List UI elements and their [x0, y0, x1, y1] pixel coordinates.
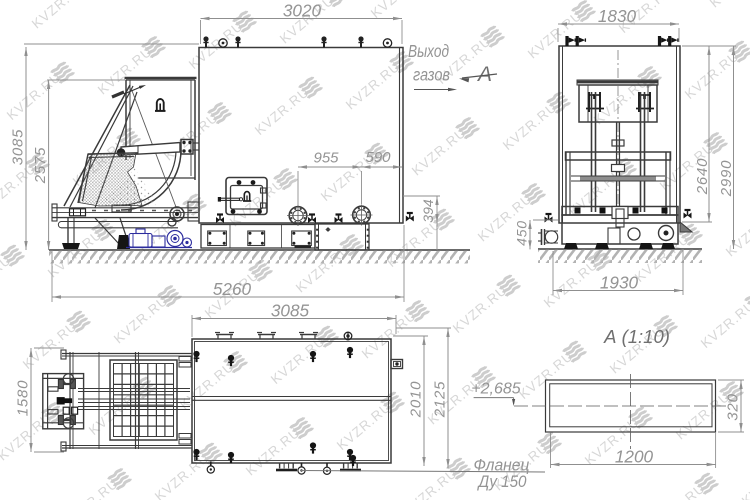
- svg-text:1830: 1830: [598, 6, 637, 26]
- svg-text:450: 450: [514, 220, 530, 246]
- svg-text:5260: 5260: [213, 279, 252, 299]
- svg-text:Выход: Выход: [408, 41, 449, 61]
- svg-text:2990: 2990: [718, 160, 735, 198]
- svg-text:3085: 3085: [271, 301, 310, 321]
- svg-text:1200: 1200: [615, 447, 654, 467]
- svg-text:320: 320: [725, 393, 742, 420]
- svg-text:Фланец: Фланец: [474, 457, 530, 475]
- svg-text:955: 955: [313, 150, 339, 167]
- svg-text:590: 590: [365, 149, 391, 166]
- svg-text:+2,685: +2,685: [471, 381, 520, 398]
- svg-text:3085: 3085: [10, 129, 27, 166]
- svg-text:1930: 1930: [600, 273, 639, 293]
- svg-text:394: 394: [420, 199, 436, 223]
- svg-text:А (1:10): А (1:10): [603, 326, 670, 347]
- svg-text:газов: газов: [413, 65, 450, 85]
- svg-text:3020: 3020: [283, 1, 322, 21]
- svg-text:2640: 2640: [694, 158, 711, 196]
- svg-text:2125: 2125: [432, 381, 449, 419]
- svg-text:Ду 150: Ду 150: [477, 473, 528, 491]
- svg-text:1580: 1580: [15, 380, 32, 417]
- svg-text:2010: 2010: [408, 381, 425, 419]
- svg-text:2575: 2575: [32, 147, 49, 185]
